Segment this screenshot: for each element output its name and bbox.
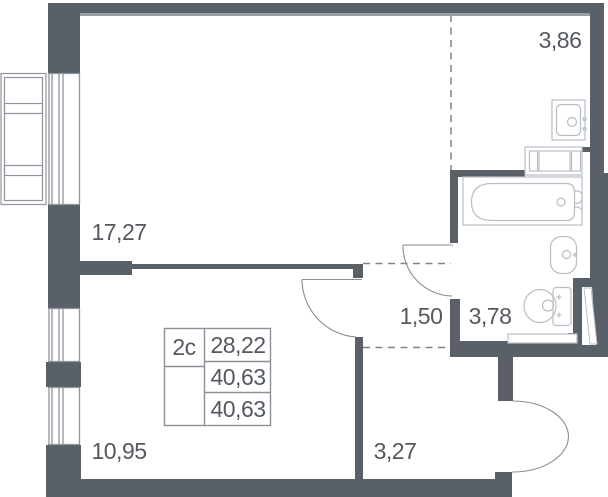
bathtub-icon (463, 177, 582, 225)
wall-right-upper (590, 3, 604, 173)
window-living-large (48, 74, 80, 205)
wall-divider-thin (132, 264, 353, 269)
wall-bath-top (450, 170, 525, 177)
bathroom-door-arc (403, 245, 452, 296)
wall-bedroom-right (355, 337, 363, 479)
washing-machine-icon (525, 147, 582, 175)
window-bedroom-1 (48, 309, 80, 362)
unit-living-area: 28,22 (210, 332, 265, 358)
wall-bath-left-upper (450, 170, 458, 243)
corridor-area-label: 1,50 (400, 303, 443, 329)
wall-divider-thick (80, 261, 132, 275)
wall-left-mid (48, 205, 80, 308)
bedroom-door-arc (302, 280, 356, 338)
entry-hall-area-label: 3,86 (539, 27, 582, 53)
bedroom-area-label: 10,95 (91, 438, 146, 464)
zone-boundaries (363, 15, 451, 348)
wall-top (48, 3, 590, 13)
bathroom-door-threshold (508, 334, 577, 343)
wall-washer-stub (582, 147, 590, 152)
washbasin-icon (551, 237, 578, 274)
kitchen-niche-area-label: 3,27 (374, 438, 417, 464)
wall-divider-jamb (353, 264, 363, 278)
floor-plan: 2с 28,22 40,63 40,63 17,27 3,86 1,50 3,7… (0, 0, 608, 497)
unit-type-label: 2с (172, 334, 195, 360)
living-room-area-label: 17,27 (91, 219, 146, 245)
wall-bottom-door-jamb (495, 472, 512, 497)
window-bedroom-2 (48, 388, 80, 445)
walls (46, 3, 608, 497)
wall-left-bottom (46, 445, 81, 497)
info-table: 2с 28,22 40,63 40,63 (165, 329, 271, 426)
unit-total-area: 40,63 (210, 396, 265, 422)
wall-entry-stub (498, 357, 513, 401)
wall-bottom (80, 479, 512, 497)
balcony-mullion-2 (5, 166, 43, 176)
info-table-values: 2с 28,22 40,63 40,63 (172, 332, 265, 422)
unit-area: 40,63 (210, 364, 265, 390)
wall-left-top (48, 3, 80, 73)
doors (302, 245, 568, 472)
kitchen-sink-icon (552, 100, 586, 140)
balcony-inner-frame (5, 78, 43, 201)
wall-left-pier (46, 362, 81, 387)
entrance-door-arc (512, 401, 568, 472)
balcony-outer-frame (1, 74, 46, 205)
balcony-mullion-1 (5, 104, 43, 114)
bathroom-area-label: 3,78 (469, 303, 512, 329)
balcony (1, 74, 46, 205)
wall-top-inner-line (80, 13, 590, 16)
toilet-icon (524, 288, 571, 326)
